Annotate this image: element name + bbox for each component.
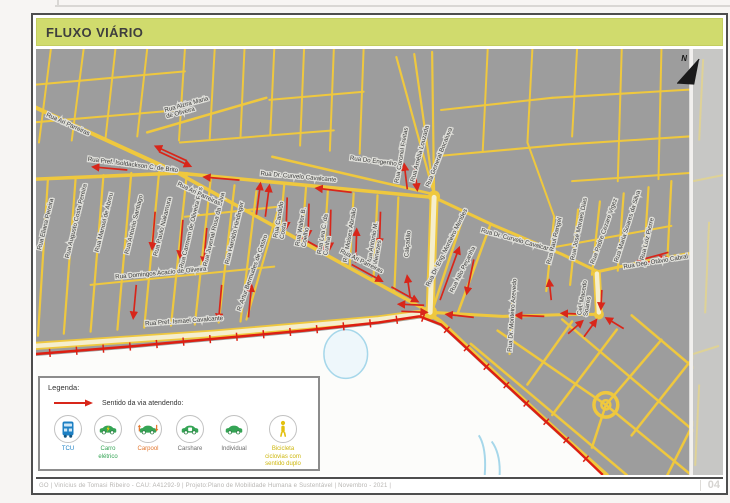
faded-map-edge bbox=[689, 49, 723, 475]
map-area: Rua Ari ParreirasRua Alzira Mariade Oliv… bbox=[36, 49, 723, 475]
title-bar: FLUXO VIÁRIO bbox=[36, 18, 723, 46]
cyclist-icon bbox=[273, 419, 293, 439]
legend-direction-row: Sentido da via atendendo: bbox=[52, 398, 310, 408]
bus-icon bbox=[58, 419, 78, 439]
page-number: 04 bbox=[700, 480, 720, 491]
legend-item-individual: Individual bbox=[212, 415, 256, 454]
page-title: FLUXO VIÁRIO bbox=[46, 25, 143, 40]
pond bbox=[324, 330, 368, 379]
legend-item-tcu: TCU bbox=[48, 415, 88, 454]
carshare-icon bbox=[179, 423, 201, 435]
title-block-footer: GO | Vinícius de Tomasi Ribeiro - CAU: A… bbox=[36, 477, 723, 492]
legend-title: Legenda: bbox=[48, 383, 310, 392]
legend-direction-label: Sentido da via atendendo: bbox=[102, 400, 183, 407]
scan-artifact-line bbox=[55, 5, 730, 7]
legend-item-carpool: Carpool bbox=[128, 415, 168, 454]
macedo-soares-road bbox=[597, 274, 599, 313]
legend-item-carshare: Carshare bbox=[168, 415, 212, 454]
carpool-icon bbox=[137, 423, 159, 435]
scanned-page: FLUXO VIÁRIO bbox=[0, 0, 730, 503]
north-label: N bbox=[681, 54, 687, 63]
scan-artifact-tick bbox=[57, 0, 59, 7]
legend-items: TCU Carroelétr bbox=[48, 415, 310, 469]
legend-item-electric-car: Carroelétrico bbox=[88, 415, 128, 461]
legend-item-bike: Bicicletaciclovias com sentido duplo bbox=[256, 415, 310, 469]
electric-car-icon bbox=[97, 423, 119, 435]
individual-car-icon bbox=[223, 423, 245, 435]
footer-credits: GO | Vinícius de Tomasi Ribeiro - CAU: A… bbox=[39, 483, 391, 489]
legend: Legenda: Sentido da via atendendo: bbox=[38, 376, 320, 471]
sheet-frame: FLUXO VIÁRIO bbox=[31, 13, 728, 495]
direction-arrow-icon bbox=[52, 398, 94, 408]
